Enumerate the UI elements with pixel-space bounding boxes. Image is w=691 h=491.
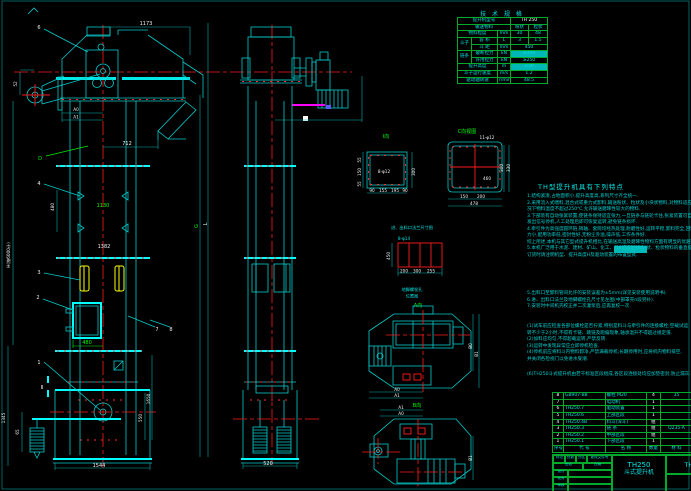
osnap-marker xyxy=(326,105,331,109)
part-code: TH250.6 xyxy=(563,412,605,419)
part-no: 5 xyxy=(553,412,564,419)
tb-model-cell: TH250 斗式提升机 xyxy=(611,455,667,491)
dim-b-a1: A1 xyxy=(398,405,404,410)
label-view-i: Ⅰ向 xyxy=(383,133,389,140)
dim-i-55a: 55 xyxy=(357,157,362,163)
part-code: TH250.7 xyxy=(563,406,605,413)
dim-c-300: 300 xyxy=(499,164,504,172)
dim-an-450: 450 xyxy=(386,252,391,260)
dim-712: 712 xyxy=(122,141,132,147)
spec-group: 链条 xyxy=(458,51,472,64)
part-no: 8 xyxy=(553,393,564,400)
spec-group: 斗子 xyxy=(458,37,472,50)
dim-i-90a: 90 xyxy=(369,188,375,193)
part-material xyxy=(660,439,691,446)
part-name: 链 条 xyxy=(605,426,647,433)
part-name: 电动机 xyxy=(605,399,647,406)
dim-1173: 1173 xyxy=(140,21,153,27)
dim-1544: 1544 xyxy=(93,463,106,469)
title-block: 标记 处数 分区 更改文件号 签名 日期 设计 校对 审核 TH250 斗式提升… xyxy=(552,454,691,491)
note-line: (6)TH250斗式提升机由若干标准区段组成,各区段连接处均应加垫密封,防止漏灰… xyxy=(527,372,691,379)
notes-block-a: 1.结构紧凑,占地面积小,提升高度高,系列尺寸齐全统一. 2.采用流入式喂料,混… xyxy=(527,194,691,259)
notes-title: TH型提升机具有下列特点 xyxy=(538,181,624,191)
spec-unit: L xyxy=(498,37,511,44)
dim-a-b0: B0 xyxy=(468,343,473,349)
spec-label: 破断拉力 xyxy=(472,51,498,58)
side-elevation-view: 520 xyxy=(233,25,362,469)
spec-value: 450 xyxy=(511,44,548,51)
spec-label: 斗子运行速度 xyxy=(458,71,498,78)
spec-value: ≤30 xyxy=(511,64,548,71)
part-name: 上部区段 xyxy=(605,412,647,419)
callout-1: 1 xyxy=(37,360,40,366)
dim-550: 550 xyxy=(138,414,143,422)
part-material: Q235-A xyxy=(660,426,691,433)
holes-anchor: 8-φ14 xyxy=(398,236,411,241)
dim-a-b1: B1 xyxy=(474,351,479,357)
parts-header: 代 号 xyxy=(563,446,605,453)
part-no: 4 xyxy=(553,419,564,426)
spec-value: 1.2 xyxy=(511,71,548,78)
caption-anchor-2: 位置图 xyxy=(406,293,419,300)
label-view-b: B向 xyxy=(413,402,421,409)
plan-view-a: A向 B0 B1 A0 A1 xyxy=(369,302,479,398)
dim-i-155: 155 xyxy=(379,188,387,193)
spec-label: 容 积 xyxy=(472,37,498,44)
parts-header: 材 料 xyxy=(660,446,691,453)
spec-value: 30 xyxy=(511,31,529,38)
callout-8: 8 xyxy=(169,327,172,333)
note-line: 并关闭各检视门以免进水受潮. xyxy=(527,357,688,364)
dim-an-200: 200 xyxy=(400,269,408,274)
surface-mark xyxy=(28,8,38,14)
spec-value: 3 xyxy=(511,37,529,44)
caption-anchor-1: 地脚螺栓孔 xyxy=(402,286,424,293)
parts-header: 序号 xyxy=(553,446,564,453)
dim-c-460: 460 xyxy=(483,176,491,181)
part-no: 6 xyxy=(553,406,564,413)
part-qty: 1 xyxy=(647,399,660,406)
note-line: 订货时请注明机型、提升高度H及驱动装置的布置型式. xyxy=(527,253,691,260)
spec-unit: m/s xyxy=(498,71,511,78)
dim-65: 65 xyxy=(15,429,20,435)
spec-unit: m xyxy=(498,64,511,71)
callout-7: 7 xyxy=(155,327,158,333)
dim-i-55b: 55 xyxy=(357,181,362,187)
spec-label: 提升机型号 xyxy=(458,18,511,25)
dim-c-200: 200 xyxy=(477,194,485,199)
dim-52: 52 xyxy=(13,81,18,87)
spec-value: 48.5 xyxy=(511,77,548,84)
dim-i-150: 150 xyxy=(357,168,362,176)
dim-1130: 1130 xyxy=(97,203,110,209)
tb-blank xyxy=(665,473,691,491)
part-name: 驱动装置 xyxy=(605,406,647,413)
spec-label: 许用拉力 xyxy=(472,57,498,64)
part-qty: 1 xyxy=(647,406,660,413)
part-material: 35 xyxy=(660,393,691,400)
dim-b-b1: B1 xyxy=(468,455,473,461)
part-code: TH250.1 xyxy=(563,439,605,446)
front-elevation-view: 1173 6 52 A0 A1 712 D 4 480 1130 1382 3 … xyxy=(1,21,352,470)
part-qty: 组 xyxy=(647,419,660,426)
note-line: 5.出料口至卸料管间允许的安装误差为±5mm(详见安装使用说明书). xyxy=(527,291,667,298)
part-qty: 1 xyxy=(647,439,660,446)
dim-c-478: 478 xyxy=(470,201,478,206)
dim-1345: 1345 xyxy=(1,412,6,423)
dim-g: G xyxy=(194,224,200,228)
note-highlight: (详见选型样本) xyxy=(614,246,647,253)
part-code: TH250.4B xyxy=(563,419,605,426)
tb-name: 斗式提升机 xyxy=(612,470,666,477)
spec-label: 斗 距 xyxy=(472,44,498,51)
part-name: 中部区段 xyxy=(605,432,647,439)
label-view-a: A向 xyxy=(414,302,422,309)
part-name: 螺栓 M20 xyxy=(605,393,647,400)
dim-520: 520 xyxy=(263,461,273,467)
part-no: 2 xyxy=(553,432,564,439)
dim-i-300: 300 xyxy=(411,168,416,176)
part-no: 3 xyxy=(553,426,564,433)
note-line: (4)停机前应将料斗内物料卸净,严禁满载停机;长期停用时,应将机内物料排空, xyxy=(527,350,688,357)
caption-flange-detail: 进、出料口法兰尺寸图 xyxy=(391,224,433,231)
part-material xyxy=(660,419,691,426)
label-d: D xyxy=(38,156,42,162)
part-no: 7 xyxy=(553,399,564,406)
spec-value: 48 xyxy=(529,31,548,38)
callout-4: 4 xyxy=(37,181,40,187)
spec-unit: r/min xyxy=(498,77,511,84)
dim-l: L xyxy=(203,222,209,225)
spec-value: 粉状 xyxy=(511,24,529,31)
parts-header: 数量 xyxy=(647,446,660,453)
tb-blank xyxy=(567,483,613,491)
dim-h: H(按6000计) xyxy=(5,242,12,268)
callout-2: 2 xyxy=(36,295,39,301)
spec-label: 提升高度 xyxy=(458,64,498,71)
callout-3: 3 xyxy=(37,270,40,276)
dim-480-mid: 480 xyxy=(50,203,55,211)
part-code: TH250.2 xyxy=(563,432,605,439)
dim-c-150: 150 xyxy=(460,194,468,199)
spec-value: ≥350 xyxy=(511,51,548,58)
dim-a-a1: A1 xyxy=(394,393,400,398)
dim-a0: A0 xyxy=(73,107,79,112)
notes-block-c: (1)试车前应检查各部位螺栓是否拧紧,特别是料斗与牵引件的连接螺栓;空载试运 转… xyxy=(527,324,688,363)
part-material xyxy=(660,399,691,406)
dim-i-195: 195 xyxy=(391,188,399,193)
spec-label: 输送物料 xyxy=(458,24,511,31)
dim-a-a0: A0 xyxy=(394,387,400,392)
flange-detail-views: Ⅰ向 8-φ12 300 90 155 195 90 55 150 55 C向视… xyxy=(357,128,511,231)
tb-drawing-no: TH250 xyxy=(665,455,691,475)
plan-view-b: B向 A1 A0 B1 xyxy=(362,402,473,486)
parts-header: 名 称 xyxy=(605,446,647,453)
part-code: TH250.3 xyxy=(563,426,605,433)
spec-unit: kN xyxy=(498,51,511,58)
spec-value: 粒状 xyxy=(529,24,548,31)
spec-value: ≥250 xyxy=(511,57,548,64)
label-view-c: C向视图 xyxy=(458,128,477,135)
spec-value: TH 250 xyxy=(511,18,548,25)
part-code: GB907-88 xyxy=(563,393,605,400)
callout-6: 6 xyxy=(37,25,40,31)
note-line: (1)试车前应检查各部位螺栓是否拧紧,特别是料斗与牵引件的连接螺栓;空载试运 xyxy=(527,324,688,331)
dim-480-boot: 480 xyxy=(82,340,92,346)
part-qty: 1 xyxy=(647,412,660,419)
holes-c: 11-φ12 xyxy=(480,135,495,140)
dim-b-a0: A0 xyxy=(398,411,404,416)
dim-c-330: 330 xyxy=(506,164,511,172)
cad-drawing-sheet: 1173 6 52 A0 A1 712 D 4 480 1130 1382 3 … xyxy=(0,0,691,491)
dim-1382: 1382 xyxy=(98,244,111,250)
parts-list-table: 8GB907-88螺栓 M20435配对 7电动机1购件 6TH250.7驱动装… xyxy=(552,392,691,453)
part-material xyxy=(660,432,691,439)
spec-value: 1.5 xyxy=(529,37,548,44)
part-name: 料斗(深斗) xyxy=(605,419,647,426)
notes-block-d: (6)TH250斗式提升机由若干标准区段组成,各区段连接处均应加垫密封,防止漏灰… xyxy=(527,372,691,379)
dim-i-90b: 90 xyxy=(402,188,408,193)
holes-i: 8-φ12 xyxy=(378,169,391,174)
part-name: 下部区段 xyxy=(605,439,647,446)
dim-an-255: 255 xyxy=(427,269,435,274)
dim-an-300: 300 xyxy=(413,269,421,274)
part-material xyxy=(660,406,691,413)
notes-block-b: 5.出料口至卸料管间允许的安装误差为±5mm(详见安装使用说明书). 6.进、出… xyxy=(527,291,667,311)
part-material xyxy=(660,412,691,419)
part-qty: 组 xyxy=(647,426,660,433)
part-no: 1 xyxy=(553,439,564,446)
note-line: 7.安装时中间机壳校正并二次灌浆后,应再复校一次. xyxy=(527,304,667,311)
spec-unit: mm xyxy=(498,31,511,38)
spec-unit: kN xyxy=(498,57,511,64)
part-code xyxy=(563,399,605,406)
part-qty: 组 xyxy=(647,432,660,439)
dim-a1: A1 xyxy=(73,115,79,120)
note-line: 5.本机广泛用于水泥、建材、矿山、化工、粮食等部门作粉状、粒状物料的垂直提升 xyxy=(527,246,691,253)
part-qty: 4 xyxy=(647,393,660,400)
dim-1650: 1650 xyxy=(146,393,151,404)
spec-unit: mm xyxy=(498,44,511,51)
spec-label: 物料粒度 xyxy=(458,31,498,38)
section-mark-2: Ⅱ xyxy=(41,385,43,391)
anchor-bolt-layout: 8-φ14 450 200 300 255 地脚螺栓孔 位置图 xyxy=(386,236,442,300)
spec-table: 提升机型号TH 250 输送物料粉状粒状 物料粒度mm3048 斗子容 积L31… xyxy=(457,17,548,84)
spec-label: 驱动轴转速 xyxy=(458,77,498,84)
